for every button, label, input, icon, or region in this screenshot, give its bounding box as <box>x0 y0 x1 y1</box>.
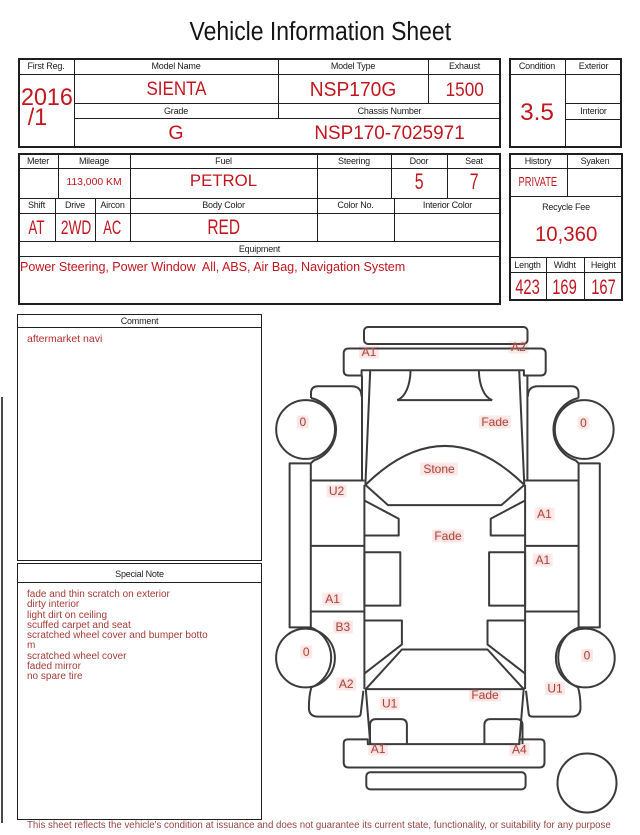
svg-text:Stone: Stone <box>423 462 455 476</box>
svg-text:A2: A2 <box>511 340 526 354</box>
svg-text:0: 0 <box>303 645 310 659</box>
svg-text:A1: A1 <box>535 553 550 567</box>
svg-text:0: 0 <box>584 649 591 663</box>
svg-text:A4: A4 <box>512 743 527 757</box>
svg-text:A1: A1 <box>371 742 386 756</box>
svg-text:0: 0 <box>299 415 306 429</box>
svg-text:Fade: Fade <box>471 688 499 702</box>
svg-text:0: 0 <box>580 416 587 430</box>
svg-text:U2: U2 <box>329 484 345 498</box>
svg-text:A1: A1 <box>325 592 340 606</box>
svg-text:Fade: Fade <box>434 529 462 543</box>
svg-text:A1: A1 <box>537 507 552 521</box>
svg-text:U1: U1 <box>547 682 563 696</box>
svg-text:A2: A2 <box>339 677 354 691</box>
svg-text:U1: U1 <box>382 697 398 711</box>
svg-text:Fade: Fade <box>481 415 509 429</box>
svg-text:A1: A1 <box>362 345 377 359</box>
svg-text:B3: B3 <box>336 620 351 634</box>
